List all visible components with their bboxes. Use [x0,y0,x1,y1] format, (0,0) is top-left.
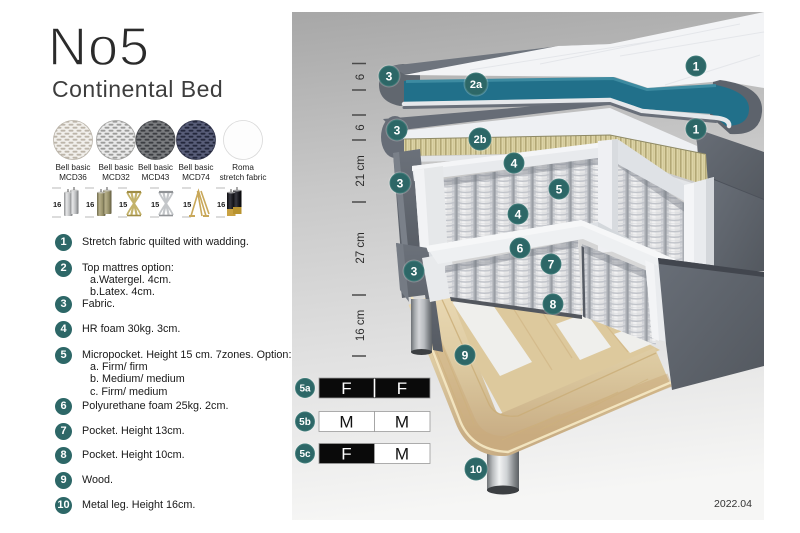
svg-text:6: 6 [517,241,524,255]
svg-text:stretch fabric: stretch fabric [220,173,267,182]
svg-text:3: 3 [411,264,418,278]
svg-text:15: 15 [151,200,159,209]
svg-text:1: 1 [693,59,700,73]
svg-text:5c: 5c [299,449,311,460]
svg-text:Roma: Roma [232,163,254,172]
svg-text:4: 4 [511,156,518,170]
svg-text:16: 16 [86,200,94,209]
svg-text:27 cm: 27 cm [355,232,367,263]
svg-text:MCD74: MCD74 [182,173,210,182]
svg-text:5b: 5b [299,417,311,428]
svg-text:21 cm: 21 cm [355,155,367,186]
svg-text:Bell basic: Bell basic [55,163,90,172]
svg-text:7: 7 [548,257,555,271]
svg-text:2b: 2b [474,134,487,146]
svg-text:MCD32: MCD32 [102,173,130,182]
svg-text:2a: 2a [470,79,483,91]
svg-text:3: 3 [394,123,401,137]
svg-text:16: 16 [217,200,225,209]
svg-text:F: F [341,379,351,398]
svg-text:MCD36: MCD36 [59,173,87,182]
svg-text:9: 9 [462,348,469,362]
svg-text:MCD43: MCD43 [142,173,170,182]
svg-text:15: 15 [183,200,191,209]
svg-text:Bell basic: Bell basic [178,163,213,172]
svg-text:3: 3 [397,176,404,190]
svg-text:F: F [341,445,351,464]
svg-text:F: F [397,379,407,398]
svg-text:5a: 5a [299,384,311,395]
svg-text:1: 1 [693,122,700,136]
svg-text:10: 10 [470,464,482,476]
svg-text:16 cm: 16 cm [355,310,367,341]
svg-text:6: 6 [355,74,367,80]
svg-text:6: 6 [355,124,367,130]
svg-text:2022.04: 2022.04 [714,498,752,510]
svg-text:8: 8 [550,297,557,311]
svg-text:4: 4 [515,207,522,221]
svg-text:3: 3 [386,69,393,83]
svg-text:Bell basic: Bell basic [98,163,133,172]
svg-text:M: M [395,445,409,464]
svg-text:Bell basic: Bell basic [138,163,173,172]
svg-text:15: 15 [119,200,127,209]
svg-text:M: M [339,413,353,432]
svg-text:M: M [395,413,409,432]
svg-text:16: 16 [53,200,61,209]
svg-text:5: 5 [556,182,563,196]
